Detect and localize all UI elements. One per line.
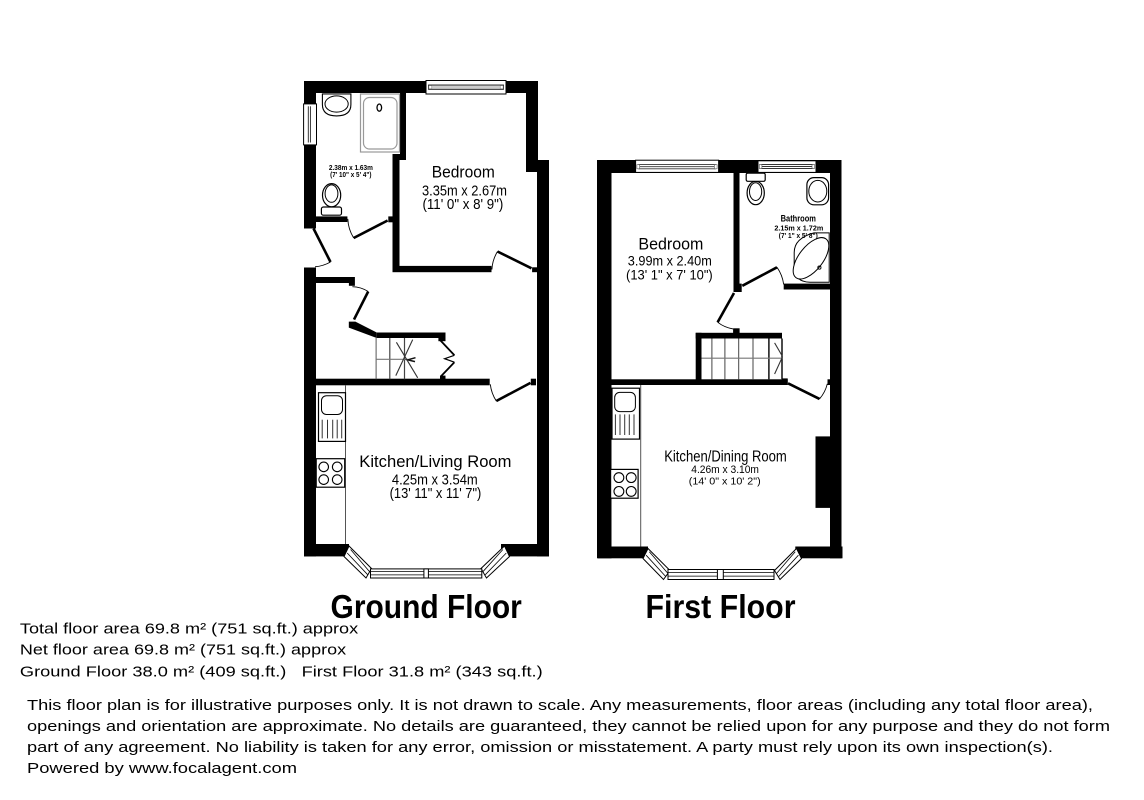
svg-text:(13' 1" x 7' 10"): (13' 1" x 7' 10") [626, 267, 713, 283]
svg-text:Ground Floor 38.0 m² (409 sq.f: Ground Floor 38.0 m² (409 sq.ft.) First … [20, 663, 543, 680]
svg-text:Kitchen/Dining Room: Kitchen/Dining Room [664, 449, 787, 466]
svg-text:Bedroom: Bedroom [638, 235, 703, 254]
svg-text:(13' 11" x 11' 7"): (13' 11" x 11' 7") [390, 486, 482, 502]
svg-text:openings and orientation are a: openings and orientation are approximate… [27, 718, 1110, 735]
svg-text:Kitchen/Living Room: Kitchen/Living Room [359, 452, 511, 471]
svg-text:Bedroom: Bedroom [432, 162, 495, 181]
svg-text:(14' 0" x 10' 2"): (14' 0" x 10' 2") [689, 475, 761, 487]
svg-text:Ground Floor: Ground Floor [331, 589, 522, 626]
svg-text:Powered by www.focalagent.com: Powered by www.focalagent.com [27, 760, 297, 777]
svg-text:Net floor area 69.8 m² (751 sq: Net floor area 69.8 m² (751 sq.ft.) appr… [20, 641, 347, 658]
svg-text:Bathroom: Bathroom [781, 214, 816, 224]
svg-text:(11' 0" x 8' 9"): (11' 0" x 8' 9") [422, 197, 503, 213]
svg-text:2.15m x 1.72m: 2.15m x 1.72m [774, 226, 823, 233]
svg-text:This floor plan is for illustr: This floor plan is for illustrative purp… [27, 697, 1093, 714]
svg-text:4.26m x 3.10m: 4.26m x 3.10m [691, 464, 759, 476]
svg-text:(7' 1" x 5' 8"): (7' 1" x 5' 8") [779, 233, 818, 240]
svg-text:part of any agreement. No liab: part of any agreement. No liability is t… [27, 739, 1053, 756]
svg-text:(7' 10" x 5' 4"): (7' 10" x 5' 4") [330, 172, 371, 179]
svg-text:Total floor area 69.8 m² (751: Total floor area 69.8 m² (751 sq.ft.) ap… [20, 620, 359, 637]
svg-text:First Floor: First Floor [646, 589, 796, 626]
svg-text:2.38m x 1.63m: 2.38m x 1.63m [329, 165, 373, 172]
